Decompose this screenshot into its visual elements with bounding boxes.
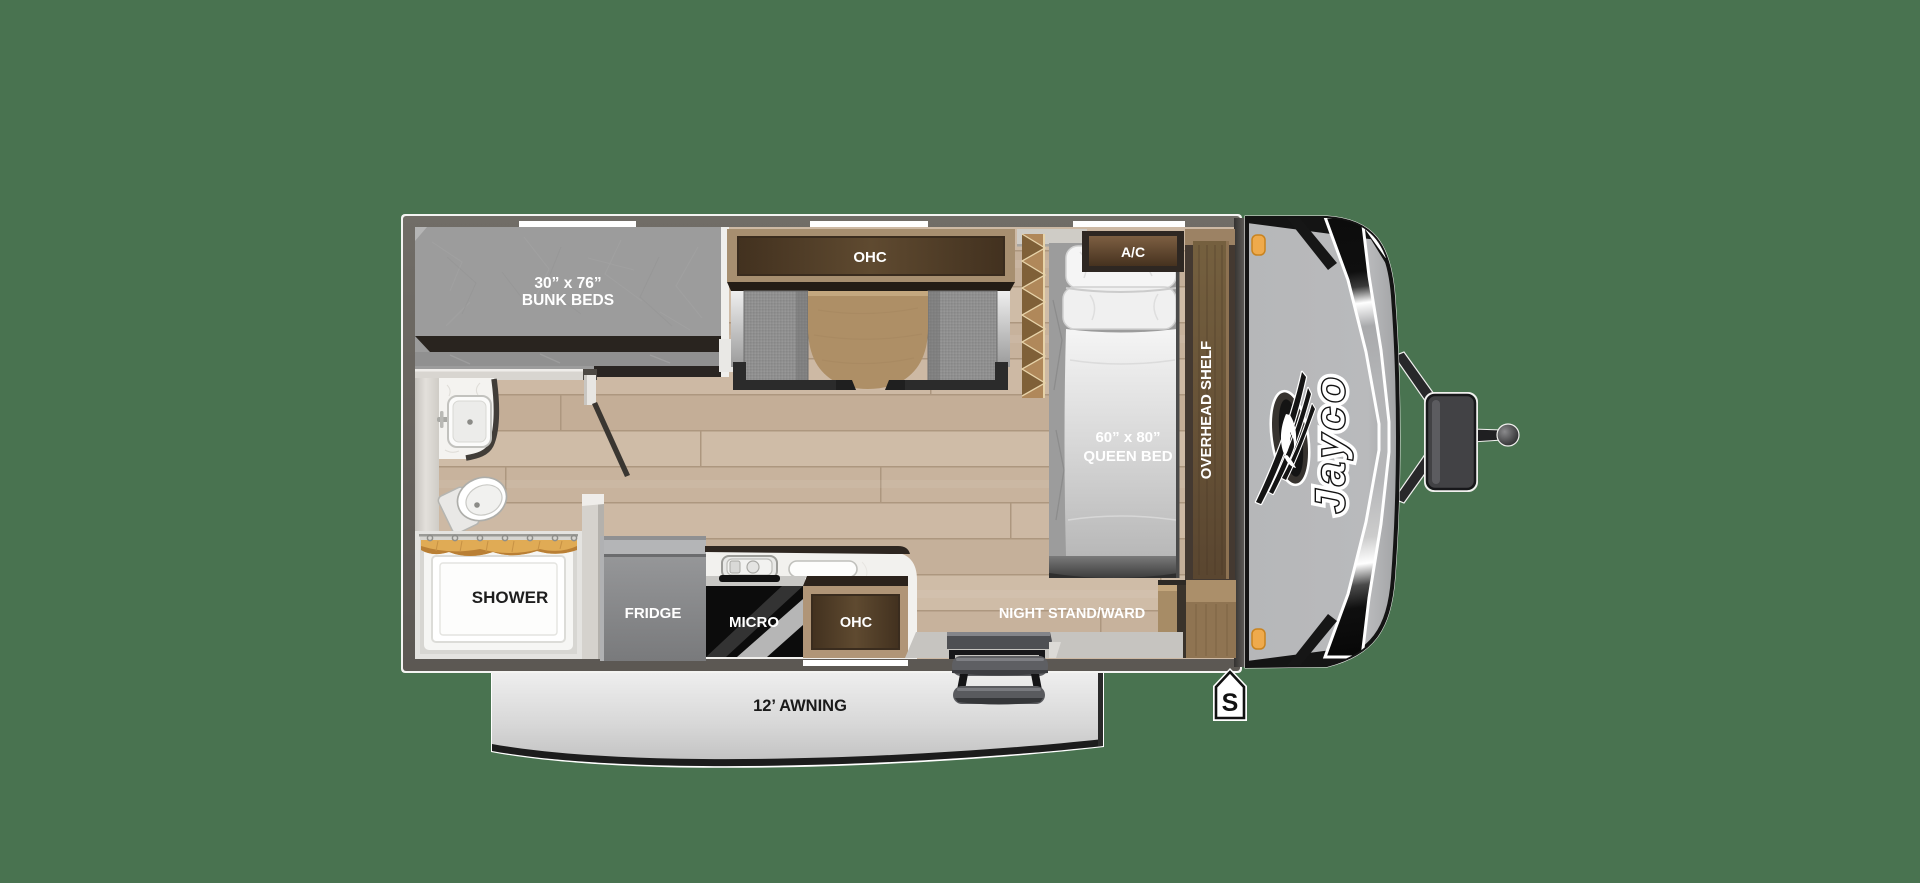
svg-text:30” x 76”: 30” x 76” xyxy=(534,275,601,292)
svg-text:Jayco: Jayco xyxy=(1307,379,1353,513)
svg-text:BUNK BEDS: BUNK BEDS xyxy=(522,292,614,309)
svg-text:60” x 80”: 60” x 80” xyxy=(1095,429,1160,446)
svg-text:NIGHT STAND/WARD: NIGHT STAND/WARD xyxy=(999,606,1145,622)
svg-text:QUEEN BED: QUEEN BED xyxy=(1083,448,1172,465)
svg-text:MICRO: MICRO xyxy=(729,614,779,631)
svg-text:FRIDGE: FRIDGE xyxy=(625,605,682,622)
svg-text:OHC: OHC xyxy=(853,249,887,266)
svg-text:A/C: A/C xyxy=(1121,244,1145,260)
svg-text:SHOWER: SHOWER xyxy=(472,588,549,607)
svg-text:OHC: OHC xyxy=(840,615,873,631)
svg-text:S: S xyxy=(1222,689,1239,717)
svg-text:12’ AWNING: 12’ AWNING xyxy=(753,697,847,715)
svg-text:OVERHEAD SHELF: OVERHEAD SHELF xyxy=(1198,341,1215,479)
